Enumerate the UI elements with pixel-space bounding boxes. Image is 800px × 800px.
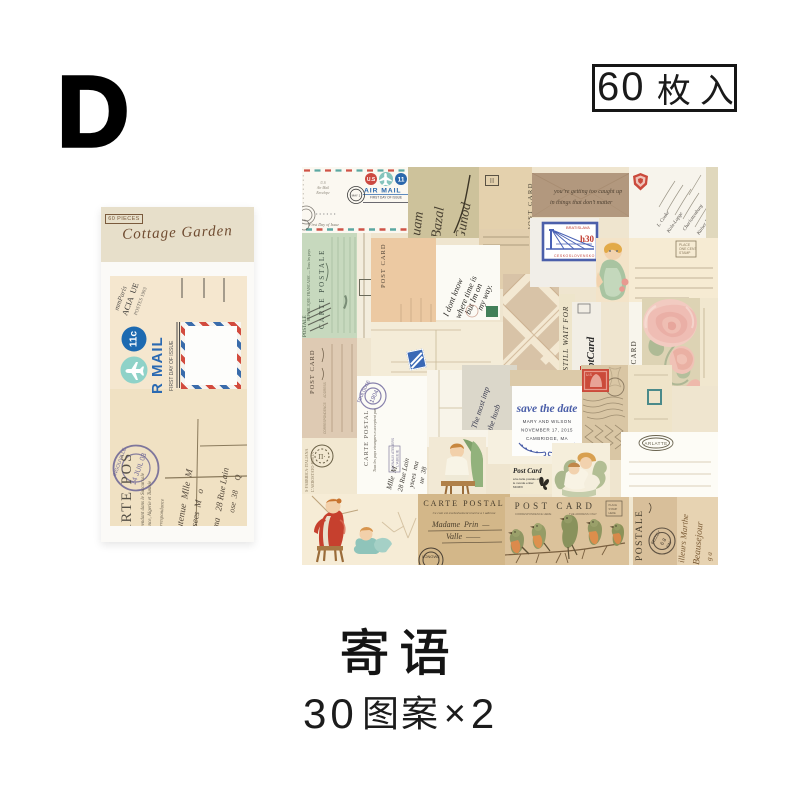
svg-text:you’re getting too caught up: you’re getting too caught up (553, 189, 622, 195)
svg-text:CARTE POSTAL: CARTE POSTAL (363, 410, 370, 466)
svg-text:POSTALE: POSTALE (303, 315, 308, 337)
svg-text:S·FABBRICA·ITALIANA: S·FABBRICA·ITALIANA (304, 449, 309, 492)
svg-text:BRATISLAVA: BRATISLAVA (566, 225, 590, 230)
svg-text:Envelope: Envelope (315, 191, 330, 195)
svg-text:R MAIL: R MAIL (149, 336, 166, 394)
svg-text:L’AEROSTATO·POSTA: L’AEROSTATO·POSTA (310, 452, 315, 492)
svg-text:h30: h30 (580, 234, 595, 244)
svg-text:PLACE: PLACE (609, 503, 618, 507)
svg-text:POST CARD: POST CARD (515, 501, 596, 511)
svg-text:FIRST DAY OF ISSUE: FIRST DAY OF ISSUE (370, 196, 402, 200)
svg-text:CORRESPONDENCE HERE: CORRESPONDENCE HERE (515, 512, 551, 516)
svg-text:ARLATTE: ARLATTE (644, 441, 667, 446)
svg-text:in things that don’t matter: in things that don’t matter (550, 200, 613, 206)
svg-text:uam: uam (409, 211, 427, 236)
svg-text:STAMP: STAMP (609, 507, 618, 511)
svg-text:CAMBRIDGE, MA: CAMBRIDGE, MA (526, 436, 568, 441)
svg-text:FIRST DAY OF ISSUE: FIRST DAY OF ISSUE (169, 340, 175, 391)
svg-text:POST CARD: POST CARD (309, 349, 316, 394)
svg-text:U.S: U.S (320, 181, 325, 185)
svg-text:CORRESPONDENCE · ADDRESS: CORRESPONDENCE · ADDRESS (323, 382, 327, 434)
svg-text:ose 38 Q: ose 38 Q (227, 474, 243, 514)
svg-text:Π·: Π· (318, 453, 325, 461)
svg-text:save the date: save the date (516, 403, 578, 415)
svg-text:ARTE POS: ARTE POS (119, 452, 135, 526)
svg-text:MAY 1: MAY 1 (352, 194, 361, 198)
svg-text:Madame Prin —: Madame Prin — (431, 520, 490, 529)
svg-text:MARY AND WILSON: MARY AND WILSON (523, 419, 572, 424)
svg-text:LONGWE: LONGWE (422, 554, 440, 559)
svg-text:Tous les pays etrangers n acce: Tous les pays etrangers n acceptent pas (372, 408, 377, 472)
svg-text:CESKOSLOVENSKO: CESKOSLOVENSKO (554, 254, 595, 258)
svg-text:CARTE POSTAL: CARTE POSTAL (423, 499, 504, 508)
svg-text:NOVEMBER 17, 2015: NOVEMBER 17, 2015 (521, 428, 573, 433)
svg-text:HERE: HERE (609, 511, 616, 515)
svg-text:11: 11 (398, 177, 405, 184)
svg-text:POSTALE: POSTALE (635, 510, 645, 561)
svg-text:POST CARD: POST CARD (380, 243, 387, 288)
svg-text:L’ABEEIE: L’ABEEIE (395, 449, 400, 467)
svg-text:Ce cote est exclusivement rese: Ce cote est exclusivement reserve a l ad… (433, 511, 496, 515)
svg-text:First Day of Issue: First Day of Issue (308, 222, 339, 227)
svg-text:France, Algerie et Tunisie: France, Algerie et Tunisie (148, 480, 153, 526)
svg-text:11c: 11c (129, 330, 140, 347)
svg-text:Post Card: Post Card (513, 467, 542, 475)
svg-text:se vendant dans le Succursale: se vendant dans le Succursale (141, 472, 146, 526)
svg-text:ma 28 Rue Lain: ma 28 Rue Lain (210, 466, 231, 526)
svg-text:REPUBLIQUE FRANCAISE — Tous le: REPUBLIQUE FRANCAISE — Tous les pays (307, 249, 311, 321)
svg-text:the husb: the husb (485, 403, 502, 430)
svg-text:Bazal: Bazal (429, 206, 448, 236)
svg-text:U.S: U.S (586, 373, 593, 377)
svg-text:TOULOUSE: TOULOUSE (357, 379, 371, 403)
svg-text:U.S: U.S (367, 177, 376, 183)
svg-text:Air Mail: Air Mail (316, 186, 329, 190)
svg-text:MCMXI: MCMXI (513, 485, 523, 489)
svg-text:Valle ——: Valle —— (446, 532, 481, 541)
svg-text:AIR MAIL: AIR MAIL (364, 188, 401, 195)
svg-text:STAMP: STAMP (679, 251, 691, 255)
svg-text:g a: g a (705, 551, 714, 561)
svg-text:Correspondance: Correspondance (159, 498, 166, 526)
svg-text:THE ADDRESS ONLY: THE ADDRESS ONLY (569, 512, 597, 516)
